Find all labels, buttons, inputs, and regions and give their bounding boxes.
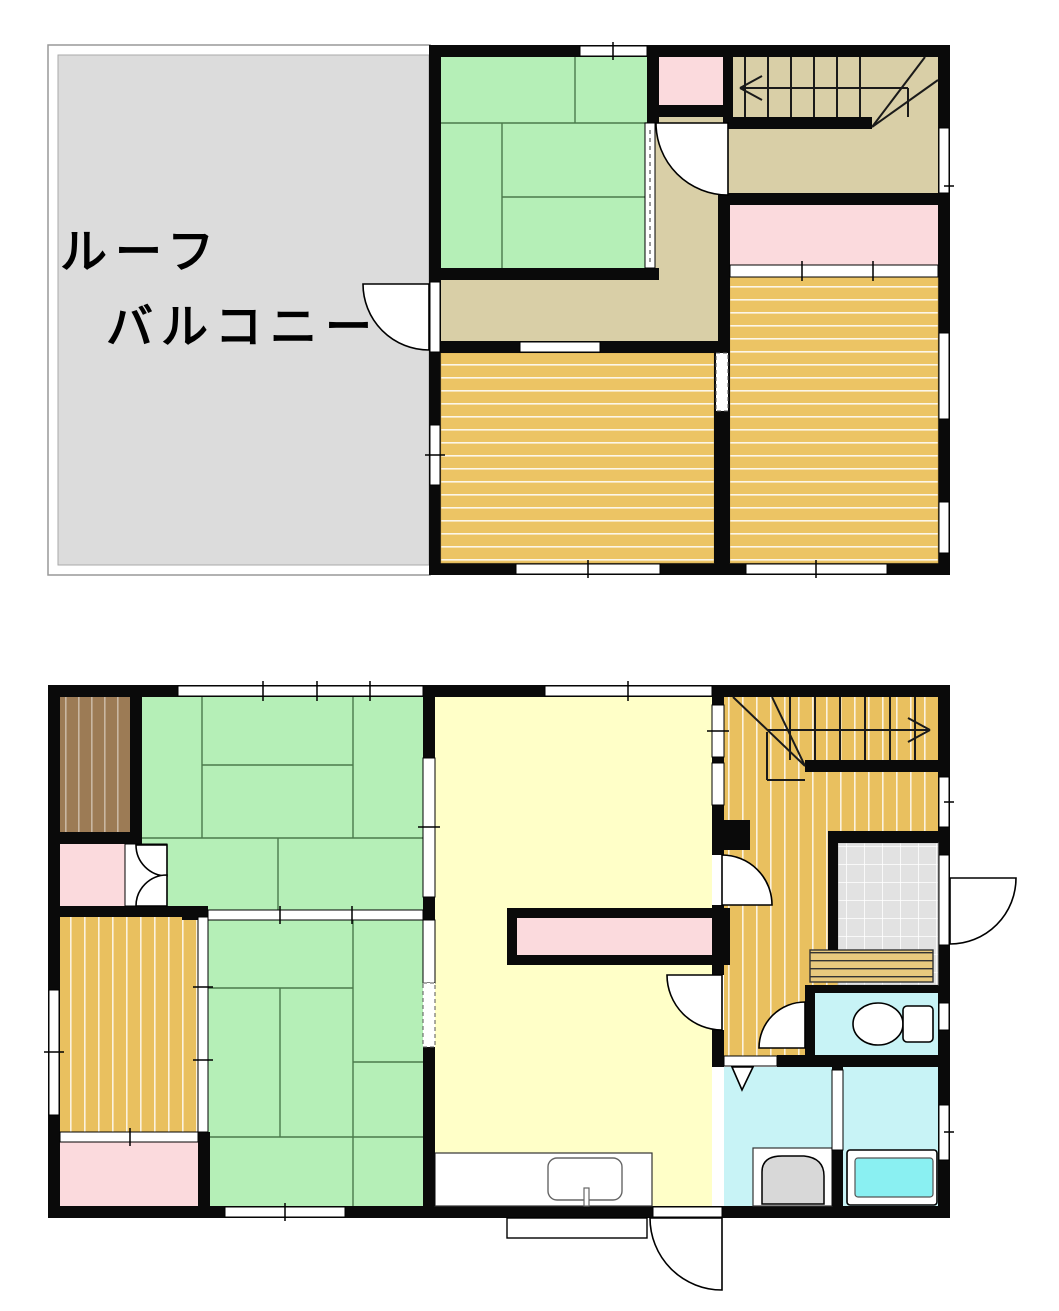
engawa-wood-room [60, 917, 198, 1132]
south-porch [60, 1142, 198, 1206]
sliding-door-bedrooms-2f [716, 353, 728, 411]
bathtub-icon [847, 1150, 937, 1205]
second-floor-plan: ルーフ バルコニー [48, 42, 954, 578]
faucet-icon [584, 1188, 589, 1206]
closet-1f [60, 844, 125, 906]
first-floor-plan [44, 681, 1016, 1290]
wash-basin-icon [753, 1148, 832, 1206]
tatami-room-2f [441, 57, 647, 268]
toilet-icon [853, 1003, 933, 1045]
tatami-room-1f-south [208, 920, 423, 1206]
kitchen-back-door [650, 1218, 722, 1290]
storage-board-room [60, 697, 130, 832]
entrance-door [950, 878, 1016, 944]
closet-east-2f [730, 205, 938, 265]
balcony-label-line1: ルーフ [60, 225, 222, 280]
floor-plan-drawing: ルーフ バルコニー [0, 0, 1059, 1311]
kitchen-counter [435, 1153, 652, 1206]
entrance-step [810, 950, 933, 982]
bedroom-east-2f [730, 277, 938, 563]
floor-plan-page: ルーフ バルコニー [0, 0, 1059, 1311]
tatami-room-1f-north [142, 697, 423, 910]
counter-closet-ldk [507, 908, 730, 965]
bedroom-west-2f [441, 353, 714, 563]
balcony-label-line2: バルコニー [106, 300, 380, 355]
sliding-door-tatami-ldk [423, 983, 435, 1047]
closet-upper-2f [659, 57, 723, 105]
terrace-step [507, 1218, 647, 1238]
